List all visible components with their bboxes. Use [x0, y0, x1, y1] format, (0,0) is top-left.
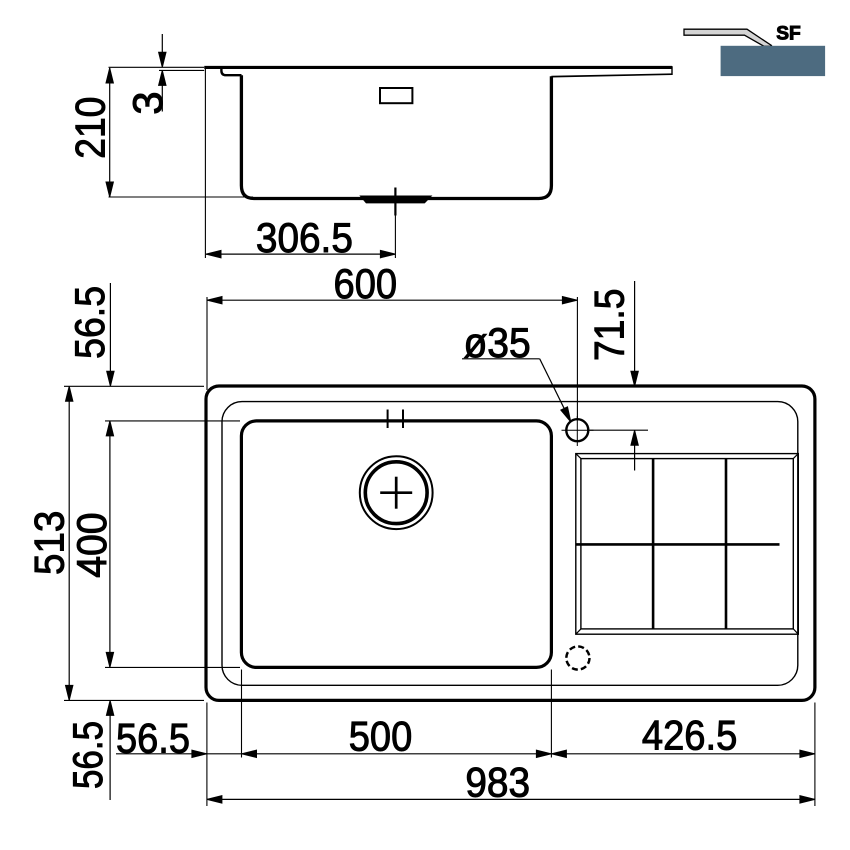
svg-text:600: 600	[334, 260, 398, 307]
svg-text:56.5: 56.5	[66, 286, 113, 359]
svg-text:56.5: 56.5	[116, 714, 190, 761]
svg-text:71.5: 71.5	[586, 289, 633, 362]
svg-text:400: 400	[68, 512, 115, 577]
svg-text:500: 500	[349, 713, 413, 760]
svg-text:SF: SF	[776, 24, 801, 45]
svg-text:426.5: 426.5	[642, 712, 738, 759]
svg-text:983: 983	[465, 759, 530, 806]
svg-text:3: 3	[124, 91, 171, 114]
svg-text:56.5: 56.5	[64, 721, 111, 789]
svg-text:306.5: 306.5	[256, 214, 353, 261]
svg-text:513: 513	[25, 511, 72, 575]
svg-text:210: 210	[66, 97, 113, 159]
